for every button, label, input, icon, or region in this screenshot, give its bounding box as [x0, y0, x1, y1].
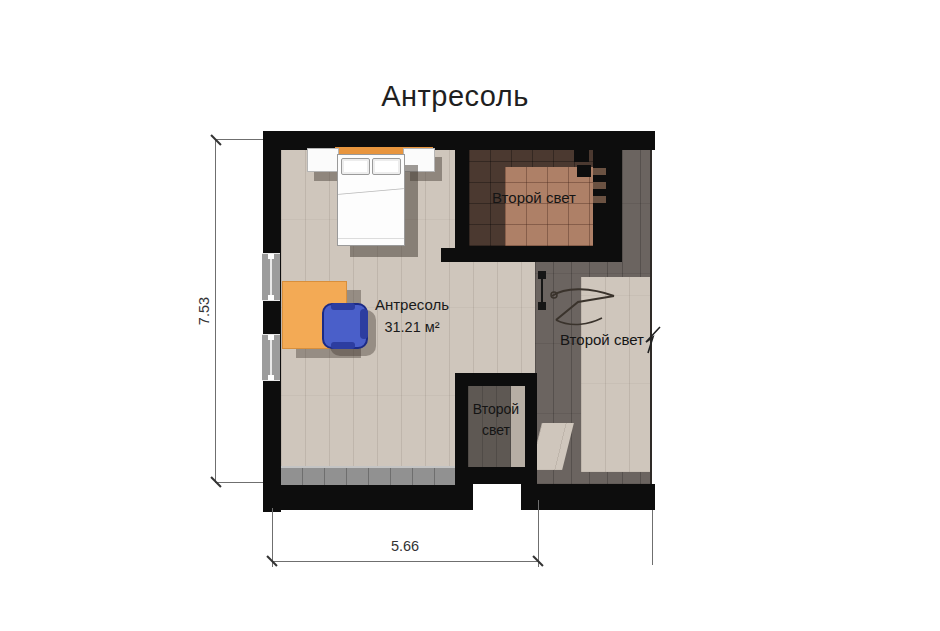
plan-right-boundary — [650, 150, 652, 484]
ladder-rung — [593, 182, 606, 189]
extension-line — [272, 508, 273, 567]
dimension-value-width: 5.66 — [375, 538, 435, 554]
ladder-rung — [593, 168, 606, 175]
door-pivot-dot — [538, 302, 546, 310]
window-node — [268, 335, 274, 340]
extension-line — [216, 139, 263, 140]
window-glazing — [270, 257, 272, 297]
dimension-line-horizontal — [272, 561, 538, 562]
room-area-label: 31.21 м² — [372, 319, 452, 335]
ladder-post — [577, 165, 591, 177]
wall-bottom — [263, 484, 655, 510]
dimension-line-vertical — [215, 140, 216, 483]
ladder-post — [574, 150, 589, 162]
window-node — [268, 254, 274, 259]
window-2 — [262, 334, 280, 381]
dimension-tick — [210, 134, 221, 145]
low-cabinet-strip — [281, 466, 455, 485]
bed-foot-line — [338, 238, 404, 239]
nightstand-right — [403, 148, 435, 172]
window-glazing — [270, 338, 272, 377]
chair-backrest — [360, 309, 368, 339]
dimension-value-height: 7.53 — [196, 281, 212, 341]
blanket-fold — [338, 188, 404, 195]
window-node — [268, 295, 274, 300]
second-light-void-label: Второй свет — [466, 399, 526, 441]
leader-arrow-icon — [643, 325, 663, 355]
bed — [337, 154, 405, 246]
extension-line — [538, 500, 539, 567]
extension-line — [216, 482, 263, 483]
room-name-label: Антресоль — [372, 296, 452, 313]
nightstand-left — [307, 148, 339, 172]
wall-opening — [473, 484, 521, 510]
extension-line — [652, 510, 653, 565]
second-light-top-lit-area — [505, 167, 606, 246]
door-pivot-dot — [538, 271, 546, 279]
pillow — [372, 158, 401, 175]
door-pivot-symbol — [541, 277, 543, 305]
pillow — [341, 158, 370, 175]
floor-plan-canvas: Антресоль Второй свет Второй свет — [0, 0, 940, 631]
window-1 — [262, 253, 280, 301]
railing-sketch — [548, 280, 628, 340]
page-title: Антресоль — [315, 80, 595, 113]
wall-stub — [441, 248, 458, 262]
office-chair — [322, 303, 368, 349]
chair-armrest — [331, 303, 355, 310]
chair-armrest — [331, 342, 355, 349]
wall-left — [263, 131, 281, 512]
window-node — [268, 375, 274, 380]
second-light-top-label: Второй свет — [469, 189, 599, 206]
